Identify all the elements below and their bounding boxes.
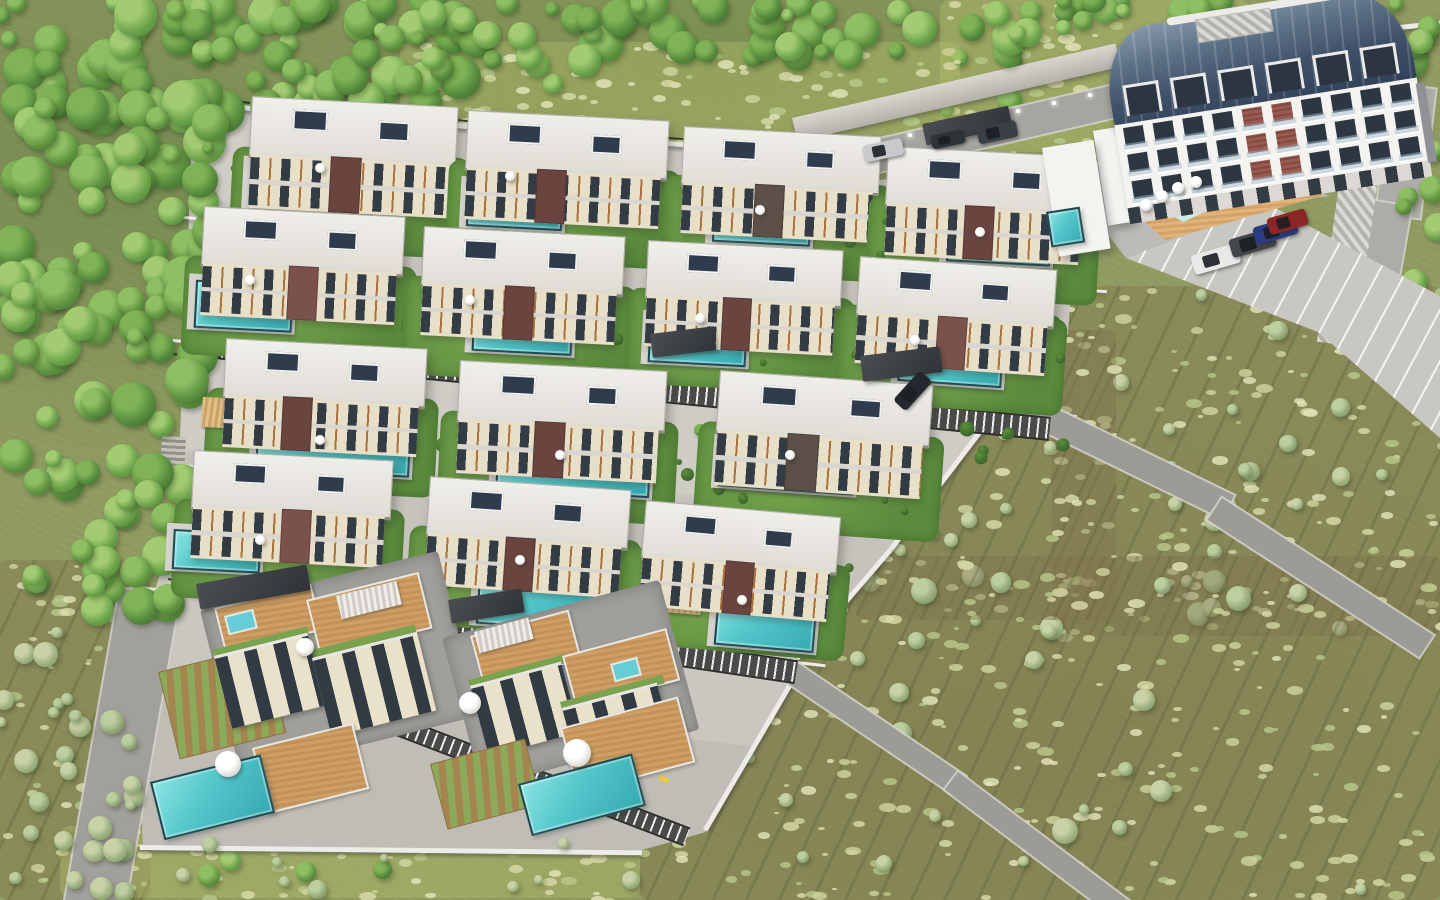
- carport-canopy: [448, 588, 525, 623]
- carport-canopy: [650, 326, 716, 358]
- patio-umbrella: [255, 535, 265, 545]
- patio-umbrella: [1172, 182, 1184, 194]
- car-glass: [985, 126, 1001, 139]
- patio-umbrella: [555, 450, 565, 460]
- patio-umbrella: [515, 555, 525, 565]
- carport-canopy: [860, 346, 943, 382]
- car: [862, 138, 905, 163]
- car-glass: [1275, 216, 1291, 230]
- patio-umbrella: [563, 739, 591, 767]
- aerial-render-scene: [0, 0, 1440, 900]
- details-layer: [0, 0, 1440, 900]
- car-glass: [1201, 252, 1220, 269]
- patio-umbrella: [737, 595, 747, 605]
- car-glass: [871, 144, 887, 157]
- patio-umbrella: [459, 692, 481, 714]
- patio-umbrella: [296, 638, 314, 656]
- patio-umbrella: [245, 275, 255, 285]
- car-glass: [938, 135, 951, 146]
- car-glass: [901, 385, 918, 402]
- carport-canopy: [196, 565, 311, 610]
- patio-umbrella: [785, 450, 795, 460]
- patio-umbrella: [695, 313, 705, 323]
- patio-umbrella: [975, 227, 985, 237]
- patio-umbrella: [315, 435, 325, 445]
- patio-umbrella: [1190, 176, 1202, 188]
- patio-umbrella: [215, 751, 241, 777]
- patio-umbrella: [755, 205, 765, 215]
- patio-umbrella: [910, 335, 920, 345]
- patio-umbrella: [1156, 190, 1168, 202]
- patio-umbrella: [315, 163, 325, 173]
- patio-umbrella: [465, 295, 475, 305]
- patio-umbrella: [1140, 199, 1152, 211]
- patio-umbrella: [505, 171, 515, 181]
